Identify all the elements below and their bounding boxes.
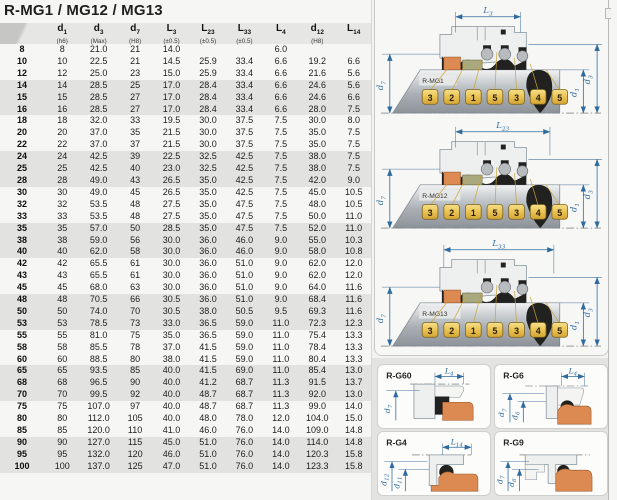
table-row: 8585120.011041.046.076.014.0109.014.8 <box>0 425 372 437</box>
table-cell: 36.0 <box>190 294 226 306</box>
datasheet-page: R-MG1 / MG12 / MG13 d1(h6)d3(Max)d7(H8)L… <box>0 0 617 500</box>
table-cell: 50.5 <box>226 306 262 318</box>
table-cell: 49.0 <box>80 187 116 199</box>
table-cell: 38.0 <box>153 354 189 366</box>
table-cell: 76.0 <box>226 437 262 449</box>
table-cell: 14.0 <box>263 449 299 461</box>
table-cell: 58 <box>117 246 153 258</box>
table-row: 8080112.010540.048.078.012.0104.015.0 <box>0 413 372 425</box>
table-cell: 9.5 <box>263 306 299 318</box>
table-cell: 33.4 <box>226 80 262 92</box>
table-cell: 36.0 <box>190 235 226 247</box>
table-cell: 7.5 <box>263 187 299 199</box>
table-cell: 6.0 <box>263 44 299 56</box>
spring <box>481 48 493 60</box>
table-cell: 40 <box>117 163 153 175</box>
table-cell: 38 <box>44 235 80 247</box>
table-row: 9090127.011545.051.076.014.0114.014.8 <box>0 437 372 449</box>
table-cell: 12 <box>0 68 44 80</box>
table-cell: 16 <box>44 104 80 116</box>
seat-ring <box>444 172 461 185</box>
table-row: 222237.03721.530.037.57.535.07.5 <box>0 139 372 151</box>
table-cell: 27.5 <box>153 199 189 211</box>
table-cell: 11.0 <box>336 211 372 223</box>
callout-number: 3 <box>514 326 519 336</box>
spring <box>517 166 528 177</box>
column-header: d12(H8) <box>299 23 335 44</box>
table-cell: 109.0 <box>299 425 335 437</box>
callout-number: 2 <box>449 93 454 103</box>
table-cell: 27.5 <box>153 211 189 223</box>
table-cell: 58.0 <box>299 246 335 258</box>
table-cell: 14 <box>0 80 44 92</box>
table-cell: 24 <box>44 151 80 163</box>
table-cell: 15 <box>0 92 44 104</box>
table-cell: 7.5 <box>336 163 372 175</box>
table-cell: 30.0 <box>153 246 189 258</box>
table-row: 7575107.09740.048.768.711.399.014.0 <box>0 401 372 413</box>
table-cell: 68.7 <box>226 401 262 413</box>
dim-label-d7: d7 <box>376 314 387 323</box>
table-cell: 33.0 <box>153 318 189 330</box>
table-cell: 13.0 <box>336 365 372 377</box>
table-cell: 35.0 <box>190 199 226 211</box>
table-cell: 100 <box>44 461 80 473</box>
table-cell: 35 <box>44 223 80 235</box>
table-cell: 57.0 <box>80 223 116 235</box>
table-cell: 13.3 <box>336 342 372 354</box>
table-cell: 7.5 <box>336 151 372 163</box>
table-cell: 6.6 <box>263 92 299 104</box>
table-cell: 35.0 <box>190 175 226 187</box>
table-row: 252542.54023.032.542.57.538.07.5 <box>0 163 372 175</box>
table-cell: 37.0 <box>153 342 189 354</box>
table-cell: 9.0 <box>263 235 299 247</box>
table-cell: 47.0 <box>153 461 189 473</box>
dimension-table-body: 8821.02114.06.0101022.52114.525.933.46.6… <box>0 44 372 473</box>
table-cell: 51.0 <box>190 449 226 461</box>
table-cell: 25.9 <box>190 56 226 68</box>
table-cell: 70.5 <box>80 294 116 306</box>
table-row: 383859.05630.036.046.09.055.010.3 <box>0 235 372 247</box>
table-cell: 42.5 <box>226 151 262 163</box>
callout-number: 3 <box>514 208 519 218</box>
table-cell: 39 <box>117 151 153 163</box>
table-cell: 13.3 <box>336 354 372 366</box>
table-cell: 68.7 <box>226 389 262 401</box>
table-row: 535378.57333.036.559.011.072.312.3 <box>0 318 372 330</box>
table-cell: 8.0 <box>336 115 372 127</box>
seat-panel-rg60: L4 d7 R-G60 <box>377 364 491 429</box>
table-row: 606088.58038.041.559.011.080.413.3 <box>0 354 372 366</box>
table-cell: 88.5 <box>80 354 116 366</box>
table-row: 282849.04326.535.042.57.542.09.0 <box>0 175 372 187</box>
table-cell: 21 <box>117 44 153 56</box>
table-cell: 92 <box>117 389 153 401</box>
seal-diagram-rmg12: L23 d7 d1 d3 R-MG12 3215345 <box>376 120 606 232</box>
table-cell: 6.6 <box>336 56 372 68</box>
table-cell: 19.2 <box>299 56 335 68</box>
table-cell: 91.5 <box>299 377 335 389</box>
table-row: 353557.05028.535.047.57.552.011.0 <box>0 223 372 235</box>
dim-label-d1: d1 <box>568 88 580 97</box>
table-cell: 11.0 <box>263 330 299 342</box>
gland <box>414 384 435 418</box>
dim-label-l3: L3 <box>482 5 493 17</box>
table-cell: 50 <box>44 306 80 318</box>
dim-label-d6: d6 <box>511 411 522 420</box>
dim-label-l4: L4 <box>568 367 578 378</box>
table-row: 100100137.012547.051.076.014.0123.315.8 <box>0 461 372 473</box>
table-row: 202037.03521.530.037.57.535.07.5 <box>0 127 372 139</box>
table-cell: 59.0 <box>226 318 262 330</box>
table-cell: 35.0 <box>153 330 189 342</box>
callout-number: 4 <box>536 208 541 218</box>
table-cell: 104.0 <box>299 413 335 425</box>
table-cell: 37.5 <box>226 139 262 151</box>
table-cell <box>190 44 226 56</box>
table-cell: 42.5 <box>80 151 116 163</box>
column-header: L23(±0.5) <box>190 23 226 44</box>
table-cell: 26.5 <box>153 187 189 199</box>
table-cell: 7.5 <box>336 104 372 116</box>
table-cell: 42.5 <box>226 175 262 187</box>
table-cell: 127.0 <box>80 437 116 449</box>
table-cell <box>336 44 372 56</box>
table-row: 484870.56630.536.051.09.068.411.6 <box>0 294 372 306</box>
stationary-seat <box>443 402 474 420</box>
seal-diagram-rmg1: L3 d7 d1 d3 R-MG1 3215345 <box>376 5 606 117</box>
callout-number: 1 <box>471 326 476 336</box>
table-cell: 30.5 <box>153 306 189 318</box>
table-cell: 17.0 <box>153 80 189 92</box>
table-cell: 43 <box>44 270 80 282</box>
table-row: 161628.52717.028.433.46.628.07.5 <box>0 104 372 116</box>
table-cell: 36.5 <box>190 318 226 330</box>
table-cell: 7.5 <box>263 115 299 127</box>
table-cell: 45 <box>44 282 80 294</box>
table-cell: 7.5 <box>263 211 299 223</box>
table-cell: 65 <box>0 365 44 377</box>
table-cell: 99.0 <box>299 401 335 413</box>
table-cell: 58 <box>44 342 80 354</box>
table-cell: 7.5 <box>336 139 372 151</box>
table-cell: 14 <box>44 80 80 92</box>
dim-label-d7: d7 <box>376 81 387 90</box>
table-cell: 11.6 <box>336 282 372 294</box>
table-cell: 65.5 <box>80 270 116 282</box>
table-cell: 12.0 <box>263 413 299 425</box>
seat-panel-rg9: d7 d6 R-G9 <box>494 431 608 496</box>
table-cell: 14.0 <box>263 461 299 473</box>
table-cell: 40.0 <box>153 377 189 389</box>
table-cell: 5.6 <box>336 80 372 92</box>
table-cell: 17.0 <box>153 92 189 104</box>
table-cell: 41.2 <box>190 377 226 389</box>
table-cell: 15.0 <box>153 68 189 80</box>
table-cell: 32.0 <box>80 115 116 127</box>
table-cell: 28.5 <box>80 104 116 116</box>
set-screw <box>501 145 506 150</box>
table-cell: 30.0 <box>190 127 226 139</box>
table-cell: 11.0 <box>263 354 299 366</box>
table-cell: 30.5 <box>153 294 189 306</box>
table-cell: 28 <box>0 175 44 187</box>
table-cell: 33 <box>117 115 153 127</box>
diagram-column: L3 d7 d1 d3 R-MG1 3215345 <box>372 0 617 500</box>
table-cell: 62.0 <box>80 246 116 258</box>
table-cell: 10.5 <box>336 199 372 211</box>
table-cell: 17.0 <box>153 104 189 116</box>
set-screw <box>501 30 506 35</box>
table-cell: 12 <box>44 68 80 80</box>
table-cell: 132.0 <box>80 449 116 461</box>
table-cell: 36.0 <box>190 246 226 258</box>
table-cell: 51.0 <box>226 258 262 270</box>
table-cell: 8 <box>0 44 44 56</box>
table-row: 151528.52717.028.433.46.624.66.6 <box>0 92 372 104</box>
seal-diagram-rmg13: L33 d7 d1 d3 R-MG13 3215345 <box>376 238 606 350</box>
table-cell: 70 <box>117 306 153 318</box>
table-cell: 120 <box>117 449 153 461</box>
table-cell: 59.0 <box>226 342 262 354</box>
table-cell: 40 <box>44 246 80 258</box>
table-row: 323253.54827.535.047.57.548.010.5 <box>0 199 372 211</box>
stationary-seat <box>556 469 592 491</box>
table-cell: 95 <box>0 449 44 461</box>
table-cell: 42.5 <box>226 187 262 199</box>
spring <box>517 51 528 62</box>
table-row: 555581.07535.036.559.011.075.413.3 <box>0 330 372 342</box>
table-cell: 10.5 <box>336 187 372 199</box>
dim-label-l33: L33 <box>491 238 505 250</box>
table-cell: 53.5 <box>80 211 116 223</box>
table-cell <box>226 44 262 56</box>
table-cell: 51.0 <box>226 270 262 282</box>
table-cell: 38.0 <box>299 163 335 175</box>
table-cell: 11.3 <box>263 377 299 389</box>
page-title: R-MG1 / MG12 / MG13 <box>4 2 163 19</box>
table-cell: 12.0 <box>336 258 372 270</box>
table-cell: 28.5 <box>80 92 116 104</box>
table-cell: 68.4 <box>299 294 335 306</box>
dim-label-d6: d6 <box>507 478 518 487</box>
table-row: 505074.07030.538.050.59.569.311.6 <box>0 306 372 318</box>
table-cell: 22.5 <box>153 151 189 163</box>
callout-number: 4 <box>536 93 541 103</box>
table-cell: 38.0 <box>299 151 335 163</box>
table-cell: 15.0 <box>336 413 372 425</box>
table-cell: 38 <box>0 235 44 247</box>
table-cell: 35.0 <box>190 223 226 235</box>
table-cell: 30.0 <box>190 139 226 151</box>
table-cell: 40 <box>0 246 44 258</box>
table-cell: 35.0 <box>190 187 226 199</box>
table-cell: 6.6 <box>263 80 299 92</box>
table-row: 242442.53922.532.542.57.538.07.5 <box>0 151 372 163</box>
table-cell: 25.0 <box>80 68 116 80</box>
table-cell: 21.0 <box>80 44 116 56</box>
table-cell: 47.5 <box>226 211 262 223</box>
table-cell: 35.0 <box>190 211 226 223</box>
table-cell: 45.0 <box>299 187 335 199</box>
table-cell: 137.0 <box>80 461 116 473</box>
table-cell: 65.5 <box>80 258 116 270</box>
table-cell: 112.0 <box>80 413 116 425</box>
table-cell: 11.3 <box>263 401 299 413</box>
table-cell: 24.6 <box>299 80 335 92</box>
seat-panel-rg4: L14 d12 d11 R-G4 <box>377 431 491 496</box>
table-cell: 36.0 <box>190 258 226 270</box>
table-cell: 14.5 <box>153 56 189 68</box>
table-cell: 78.5 <box>80 318 116 330</box>
table-cell: 13.3 <box>336 330 372 342</box>
table-cell: 22 <box>0 139 44 151</box>
table-cell: 59.0 <box>226 354 262 366</box>
table-cell: 23.0 <box>153 163 189 175</box>
spring <box>481 163 493 175</box>
table-cell: 99.5 <box>80 389 116 401</box>
table-cell: 80 <box>44 413 80 425</box>
table-cell: 35 <box>117 127 153 139</box>
table-cell: 50.0 <box>299 211 335 223</box>
table-cell: 14.0 <box>263 425 299 437</box>
column-header: d1(h6) <box>44 23 80 44</box>
table-row: 656593.58540.041.569.011.085.413.0 <box>0 365 372 377</box>
table-row: 141428.52517.028.433.46.624.65.6 <box>0 80 372 92</box>
table-cell: 63 <box>117 282 153 294</box>
table-cell: 37 <box>117 139 153 151</box>
table-cell: 107.0 <box>80 401 116 413</box>
table-cell: 92.0 <box>299 389 335 401</box>
table-row: 404062.05830.036.046.09.058.010.8 <box>0 246 372 258</box>
table-cell: 70 <box>0 389 44 401</box>
table-cell: 30.0 <box>299 115 335 127</box>
seal-diagrams-card: L3 d7 d1 d3 R-MG1 3215345 <box>374 0 609 356</box>
table-cell: 55 <box>0 330 44 342</box>
table-cell: 78.0 <box>226 413 262 425</box>
seat-ring <box>444 290 461 303</box>
table-cell: 13.0 <box>336 389 372 401</box>
table-cell: 7.5 <box>263 127 299 139</box>
table-cell: 50 <box>0 306 44 318</box>
table-cell: 53 <box>44 318 80 330</box>
table-cell: 110 <box>117 425 153 437</box>
table-cell: 90 <box>117 377 153 389</box>
table-cell: 75 <box>0 401 44 413</box>
dim-label-d11: d11 <box>393 477 404 489</box>
dim-label-d1: d1 <box>568 203 580 212</box>
column-header: d7(H8) <box>117 23 153 44</box>
table-cell: 41.0 <box>153 425 189 437</box>
table-cell: 46.0 <box>190 425 226 437</box>
table-cell: 40.0 <box>153 401 189 413</box>
table-cell: 5.6 <box>336 68 372 80</box>
table-cell: 81.0 <box>80 330 116 342</box>
table-row: 686896.59040.041.268.711.391.513.7 <box>0 377 372 389</box>
table-cell: 6.6 <box>263 68 299 80</box>
table-cell: 11.0 <box>336 223 372 235</box>
spring <box>517 284 528 295</box>
dim-label-l4: L4 <box>444 367 454 378</box>
table-cell <box>299 44 335 56</box>
table-cell: 20 <box>0 127 44 139</box>
set-screw <box>501 263 506 268</box>
table-cell: 100 <box>0 461 44 473</box>
table-cell: 45 <box>0 282 44 294</box>
column-header <box>0 23 44 44</box>
table-cell: 97 <box>117 401 153 413</box>
table-cell: 114.0 <box>299 437 335 449</box>
table-cell: 14.8 <box>336 425 372 437</box>
seat-ring <box>444 57 461 70</box>
table-cell: 11.0 <box>263 365 299 377</box>
table-cell: 33 <box>44 211 80 223</box>
dim-label-l14: L14 <box>450 437 464 448</box>
table-cell: 28 <box>44 175 80 187</box>
table-cell: 30 <box>0 187 44 199</box>
table-cell: 51.0 <box>190 461 226 473</box>
table-cell: 52.0 <box>299 223 335 235</box>
table-cell: 32 <box>0 199 44 211</box>
dimension-table-header: d1(h6)d3(Max)d7(H8)L3(±0.5)L23(±0.5)L33(… <box>0 23 372 44</box>
table-cell: 55 <box>44 330 80 342</box>
table-cell: 30 <box>44 187 80 199</box>
table-cell: 22.5 <box>80 56 116 68</box>
table-cell: 28.4 <box>190 92 226 104</box>
table-cell: 6.6 <box>263 56 299 68</box>
table-cell: 32 <box>44 199 80 211</box>
table-cell: 55.0 <box>299 235 335 247</box>
table-cell: 105 <box>117 413 153 425</box>
dim-label-d7: d7 <box>495 475 506 484</box>
callout-number: 1 <box>471 208 476 218</box>
callout-number: 1 <box>471 93 476 103</box>
table-cell: 40.0 <box>153 389 189 401</box>
table-cell: 27 <box>117 92 153 104</box>
table-cell: 33.4 <box>226 56 262 68</box>
stationary-seat <box>431 472 478 491</box>
table-cell: 14.0 <box>263 437 299 449</box>
table-cell: 64.0 <box>299 282 335 294</box>
table-cell: 40.0 <box>153 365 189 377</box>
table-row: 707099.59240.048.768.711.392.013.0 <box>0 389 372 401</box>
table-cell: 41.5 <box>190 342 226 354</box>
table-cell: 50 <box>117 223 153 235</box>
dim-label-d7: d7 <box>376 196 387 205</box>
callout-number: 4 <box>536 326 541 336</box>
table-cell: 58 <box>0 342 44 354</box>
table-cell: 80 <box>117 354 153 366</box>
panel-name: R-G60 <box>386 370 411 380</box>
dim-label-d3: d3 <box>582 308 594 317</box>
table-cell: 9.0 <box>263 258 299 270</box>
panel-name: R-G6 <box>503 370 524 380</box>
table-cell: 36.5 <box>190 330 226 342</box>
dim-label-d3: d3 <box>582 190 594 199</box>
table-cell: 24 <box>0 151 44 163</box>
table-cell: 68.7 <box>226 377 262 389</box>
table-row: 303049.04526.535.042.57.545.010.5 <box>0 187 372 199</box>
column-header: L4 <box>263 23 299 44</box>
table-cell: 16 <box>0 104 44 116</box>
seat-panels-section: L4 d7 R-G60 L4 <box>372 358 612 500</box>
table-cell: 6.6 <box>336 92 372 104</box>
callout-number: 5 <box>492 93 497 103</box>
table-cell: 41.5 <box>190 365 226 377</box>
table-cell: 43 <box>117 175 153 187</box>
table-cell: 14.8 <box>336 437 372 449</box>
